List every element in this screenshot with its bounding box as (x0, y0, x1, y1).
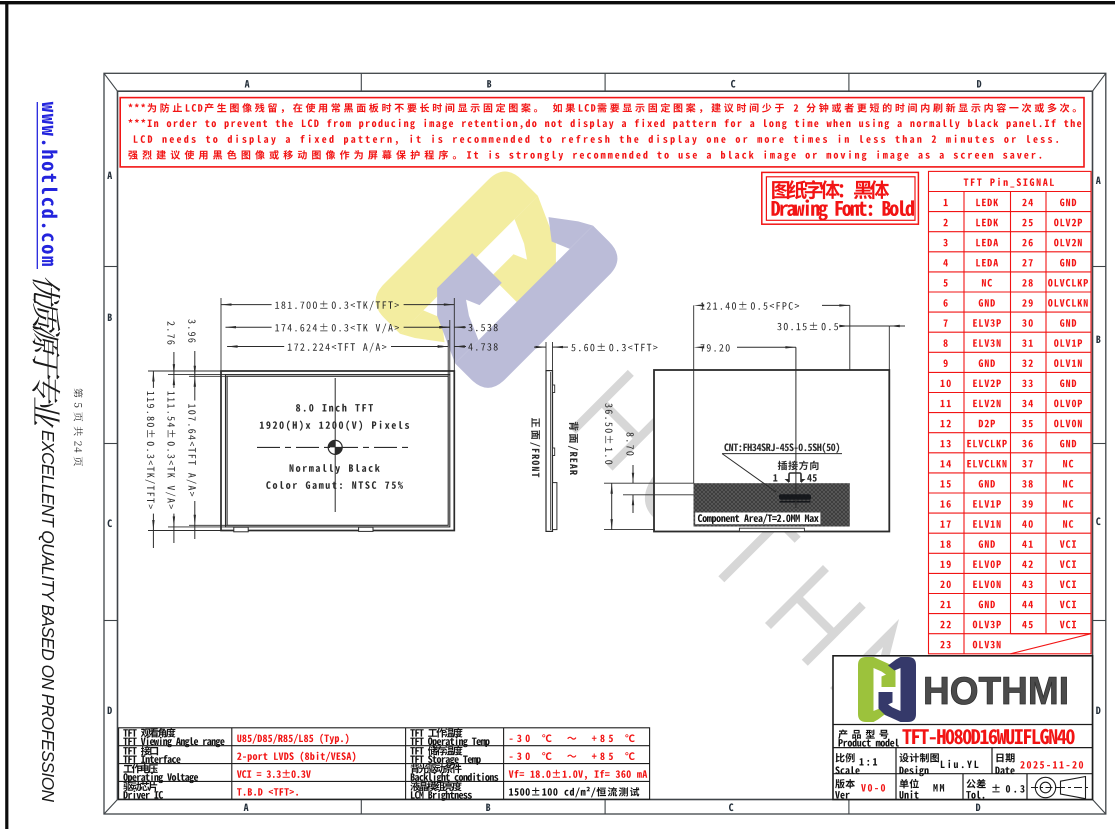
svg-text:EXCELLENT QUALITY BASED ON PRO: EXCELLENT QUALITY BASED ON PROFESSION (38, 430, 58, 803)
svg-text:HOTHMI: HOTHMI (923, 670, 1069, 713)
